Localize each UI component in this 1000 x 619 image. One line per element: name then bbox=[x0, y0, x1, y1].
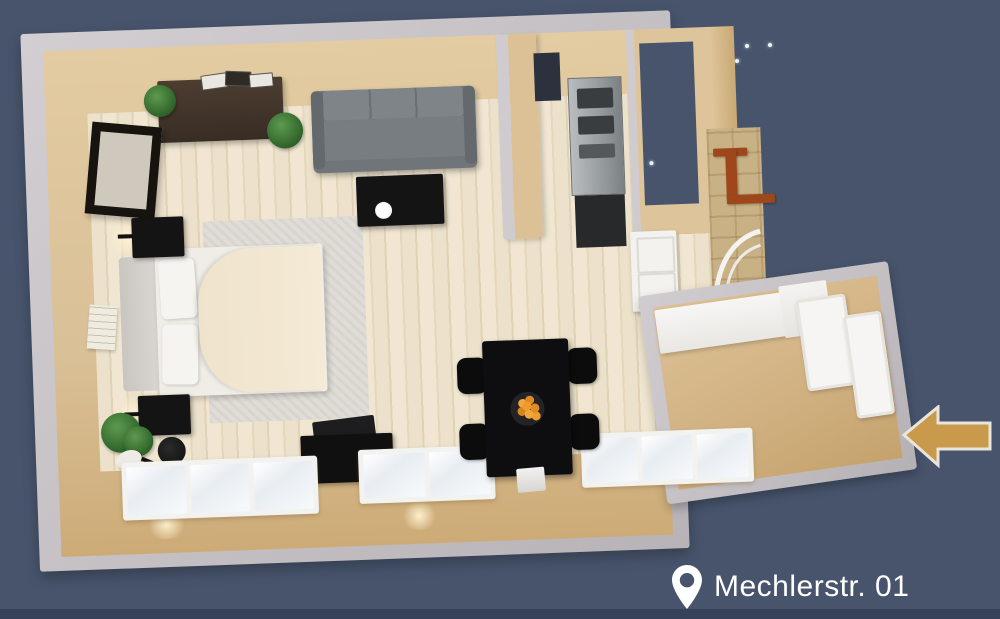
double-bed bbox=[154, 243, 327, 397]
dining-chair bbox=[566, 347, 597, 384]
location-pin-icon bbox=[672, 565, 702, 609]
window-south-1 bbox=[121, 456, 319, 521]
dining-chair bbox=[569, 413, 600, 450]
bed-duvet bbox=[196, 245, 325, 393]
stairwell-opening bbox=[639, 41, 699, 205]
kitchen-stove bbox=[578, 115, 615, 134]
book bbox=[225, 71, 251, 87]
pillow bbox=[162, 324, 198, 384]
book bbox=[249, 72, 274, 88]
bottom-shade bbox=[0, 609, 1000, 619]
star-dot bbox=[745, 44, 749, 48]
address-text: Mechlerstr. 01 bbox=[714, 570, 909, 604]
kitchen-dark-corner bbox=[533, 52, 561, 101]
laptop bbox=[516, 467, 546, 493]
scene-background: Mechlerstr. 01 bbox=[0, 0, 1000, 619]
potted-plant bbox=[143, 84, 176, 117]
coffee-table bbox=[356, 174, 445, 227]
book bbox=[200, 72, 228, 91]
wall-poster bbox=[87, 304, 118, 350]
wall-mirror bbox=[85, 122, 163, 220]
floor-plan bbox=[20, 0, 911, 594]
window-south-3 bbox=[580, 428, 754, 488]
pillow bbox=[158, 257, 198, 319]
address-label: Mechlerstr. 01 bbox=[672, 563, 992, 611]
window-pane bbox=[697, 433, 749, 479]
fruit-bowl bbox=[510, 391, 545, 426]
window-pane bbox=[190, 463, 250, 513]
sofa bbox=[311, 86, 478, 174]
window-pane bbox=[363, 453, 425, 499]
sofa-seat bbox=[324, 116, 465, 161]
oranges bbox=[522, 402, 531, 411]
star-dot bbox=[735, 59, 739, 63]
plate bbox=[375, 202, 393, 220]
kitchen-dark-counter bbox=[575, 194, 627, 248]
closet-panel bbox=[636, 236, 675, 273]
stair-handrail-red bbox=[727, 194, 775, 205]
window-pane bbox=[126, 465, 186, 515]
appliance-slot bbox=[579, 143, 615, 158]
dining-table bbox=[482, 338, 573, 477]
star-dot bbox=[768, 43, 772, 47]
kitchen-sink bbox=[577, 87, 614, 108]
kitchen-appliances bbox=[567, 76, 625, 196]
nightstand-top bbox=[131, 216, 184, 258]
window-pane bbox=[641, 435, 693, 481]
entrance-arrow-icon bbox=[900, 405, 992, 469]
wall-lamp bbox=[118, 234, 134, 239]
window-pane bbox=[254, 461, 314, 511]
dresser bbox=[157, 77, 284, 144]
